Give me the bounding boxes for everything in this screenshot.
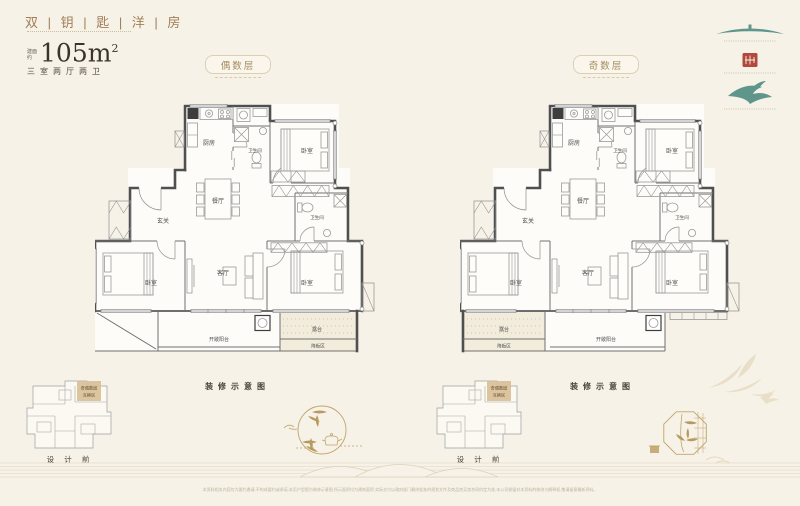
room-label-bed3: 卧室 xyxy=(301,279,313,287)
teapot-icon xyxy=(322,433,342,445)
room-label-bath2: 卫生间 xyxy=(310,214,324,221)
room-label-bath2: 卫生间 xyxy=(675,214,689,221)
mini-highlight-box xyxy=(487,381,511,401)
room-label-foyer: 玄关 xyxy=(157,217,169,225)
mini-tag-line2: 互换区 xyxy=(83,392,96,399)
room-label-bed2: 卧室 xyxy=(145,279,157,287)
even-floor-badge-label: 偶数层 xyxy=(205,55,271,74)
page-title: 双 | 钥 | 匙 | 洋 | 房 xyxy=(25,12,183,31)
room-label-foyer: 玄关 xyxy=(522,217,534,225)
room-label-terrace: 露台 xyxy=(312,326,322,333)
leaf-spray-decoration xyxy=(698,348,800,406)
disclaimer-text: 本资料相关内容仅为要约邀请,不构成要约或承诺;本页户型图为装修示意图,所示面积均… xyxy=(190,487,610,493)
area-superscript: 2 xyxy=(111,42,118,55)
area-prefix-bottom: 约 xyxy=(27,55,37,61)
plan-caption-even: 装修示意图 xyxy=(95,381,380,392)
room-label-kitchen: 厨房 xyxy=(568,139,580,147)
room-label-dining: 餐厅 xyxy=(577,197,589,205)
mini-tag-line1: 奇偶数层 xyxy=(81,385,98,392)
bamboo-circle-decoration xyxy=(276,400,372,462)
odd-floor-badge-label: 奇数层 xyxy=(573,55,639,74)
floor-plan-odd: 厨房 卫生间 卧室 餐厅 玄关 卫生间 卧室 客厅 卧室 开敞阳台 露台 降板区 xyxy=(460,93,745,369)
seal-logo-icon xyxy=(743,53,758,67)
mini-tag-line1: 奇偶数层 xyxy=(491,385,508,392)
octagon-window-decoration xyxy=(646,402,738,466)
bamboo-leaves-icon xyxy=(302,411,327,453)
room-label-terrace: 露台 xyxy=(499,326,509,333)
room-label-bed3: 卧室 xyxy=(666,279,678,287)
room-label-balcony: 开敞阳台 xyxy=(209,336,229,343)
room-label-bed2: 卧室 xyxy=(510,279,522,287)
badge-underline xyxy=(583,77,629,78)
floor-plan-even: 厨房 卫生间 卧室 餐厅 玄关 卫生间 卧室 客厅 卧室 开敞阳台 露台 降板区 xyxy=(95,93,380,369)
room-label-bed1: 卧室 xyxy=(301,147,313,155)
room-label-living: 客厅 xyxy=(582,269,594,277)
mini-tag-line2: 互换区 xyxy=(493,392,506,399)
area-figure: 建面 约 105m2 xyxy=(27,37,118,65)
even-floor-badge: 偶数层 xyxy=(205,55,271,78)
room-label-bath1: 卫生间 xyxy=(613,147,627,154)
wave-band-decoration xyxy=(0,458,800,480)
bamboo-leaves-icon xyxy=(676,421,698,441)
mini-highlight-box xyxy=(77,381,101,401)
room-label-dining: 餐厅 xyxy=(212,197,224,205)
odd-floor-badge: 奇数层 xyxy=(573,55,639,78)
room-label-sunken: 降板区 xyxy=(497,343,511,350)
room-label-sunken: 降板区 xyxy=(311,343,325,350)
room-label-living: 客厅 xyxy=(217,269,229,277)
mini-plan-1: 奇偶数层 互换区 xyxy=(15,376,125,454)
roofline-logo-icon xyxy=(716,25,784,35)
mini-plan-2: 奇偶数层 互换区 xyxy=(425,376,535,454)
room-spec: 三室两厅两卫 xyxy=(27,66,105,77)
bird-icon xyxy=(284,425,297,429)
title-subtitle-rule xyxy=(27,31,131,32)
badge-underline xyxy=(215,77,261,78)
room-label-bed1: 卧室 xyxy=(666,147,678,155)
bamboo-stalk xyxy=(681,414,684,452)
area-value: 105m2 xyxy=(40,37,118,65)
room-label-kitchen: 厨房 xyxy=(203,139,215,147)
room-label-bath1: 卫生间 xyxy=(248,147,262,154)
pale-leaves-icon xyxy=(708,354,776,396)
pot-icon xyxy=(649,446,660,453)
room-label-balcony: 开敞阳台 xyxy=(596,336,616,343)
